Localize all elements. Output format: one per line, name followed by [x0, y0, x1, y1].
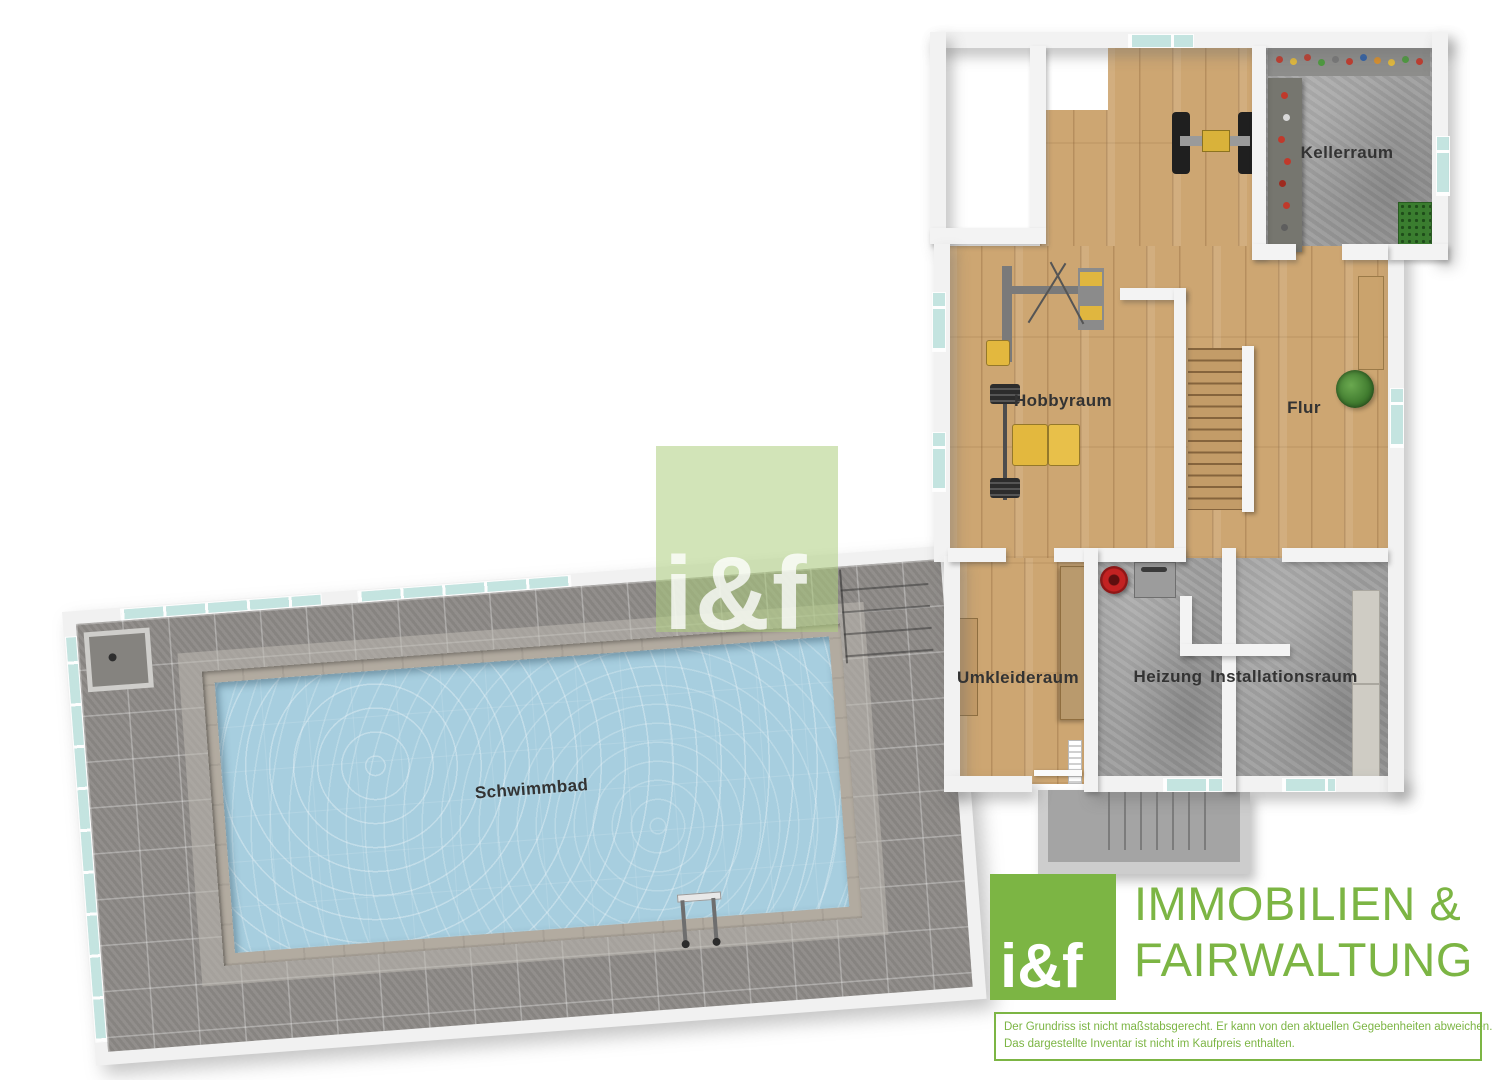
company-logo: i&f: [990, 874, 1116, 1000]
wall-segment: [1086, 776, 1404, 792]
disclaimer-line2: Das dargestellte Inventar ist nicht im K…: [1004, 1036, 1472, 1053]
disclaimer-line1: Der Grundriss ist nicht maßstabsgerecht.…: [1004, 1019, 1472, 1036]
wall-segment: [1252, 46, 1266, 258]
weight-bench-seat: [1012, 424, 1048, 466]
wall-segment: [1174, 288, 1186, 562]
pool-corner-unit: [84, 627, 154, 692]
room-label-hobbyraum: Hobbyraum: [1014, 391, 1112, 411]
room-label-heizung: Heizung: [1134, 667, 1203, 687]
floorplan-canvas: Schwimmbad: [0, 0, 1495, 1080]
pool-ladder-icon: [677, 892, 723, 949]
staircase: [1188, 348, 1242, 510]
window-installationsraum-bottom: [1282, 778, 1336, 792]
gym-machine-seat: [1202, 130, 1230, 152]
wall-segment: [1252, 244, 1296, 260]
tools-icon: [1276, 56, 1283, 63]
window-corridor-top: [1128, 34, 1194, 48]
multigym-pad-2: [1080, 306, 1102, 320]
multigym-pad-1: [1080, 272, 1102, 286]
stair-banister: [1242, 346, 1254, 512]
wall-segment: [1388, 244, 1404, 792]
room-label-flur: Flur: [1287, 398, 1321, 418]
company-name: IMMOBILIEN & FAIRWALTUNG: [1134, 876, 1473, 988]
weight-bench-back: [1048, 424, 1080, 466]
door-leaf: [1034, 770, 1082, 776]
watermark: i&f: [656, 446, 838, 632]
workbench-tools-icon: [1281, 92, 1288, 99]
wall-segment: [1388, 244, 1448, 260]
room-label-kellerraum: Kellerraum: [1301, 143, 1394, 163]
deck-steps: [839, 563, 934, 663]
wall-segment: [1084, 548, 1098, 792]
wall-segment: [1282, 548, 1388, 562]
radiator: [1068, 740, 1082, 784]
sideboard: [1358, 276, 1384, 370]
barbell-plates-bottom: [990, 478, 1020, 498]
green-crate: [1398, 202, 1432, 246]
company-name-line1: IMMOBILIEN &: [1134, 876, 1473, 932]
company-name-line2: FAIRWALTUNG: [1134, 932, 1473, 988]
gym-stool: [986, 340, 1010, 366]
wall-segment: [1342, 244, 1388, 260]
workbench: [1268, 78, 1302, 252]
void-area: [946, 46, 1032, 228]
window-flur-right: [1390, 388, 1404, 448]
potted-plant-icon: [1336, 370, 1374, 408]
boiler-icon: [1100, 566, 1128, 594]
wall-segment: [1030, 46, 1046, 228]
changing-bench-right: [1060, 566, 1086, 720]
window-kellerraum-right: [1436, 136, 1450, 196]
room-label-installationsraum: Installationsraum: [1210, 667, 1358, 687]
changing-bench-left: [958, 618, 978, 716]
wall-segment: [930, 32, 946, 244]
watermark-logo-text: i&f: [664, 542, 809, 646]
room-label-umkleideraum: Umkleideraum: [957, 668, 1079, 688]
wall-segment: [944, 776, 1032, 792]
pool-hall: Schwimmbad: [62, 545, 987, 1066]
corridor-niche: [1046, 48, 1108, 110]
window-heizung-bottom: [1163, 778, 1223, 792]
wall-segment: [1054, 548, 1186, 562]
wall-segment: [948, 548, 1006, 562]
exterior-stairs: [1108, 790, 1220, 850]
disclaimer-box: Der Grundriss ist nicht maßstabsgerecht.…: [994, 1012, 1482, 1061]
window-hobbyraum-2: [932, 432, 946, 492]
company-logo-text: i&f: [1000, 936, 1083, 998]
heating-unit: [1134, 562, 1176, 598]
exterior-stairwell: [1038, 790, 1250, 874]
tool-shelf: [1268, 46, 1430, 76]
window-hobbyraum-1: [932, 292, 946, 352]
wall-segment: [1180, 644, 1290, 656]
wall-segment: [930, 228, 1046, 244]
